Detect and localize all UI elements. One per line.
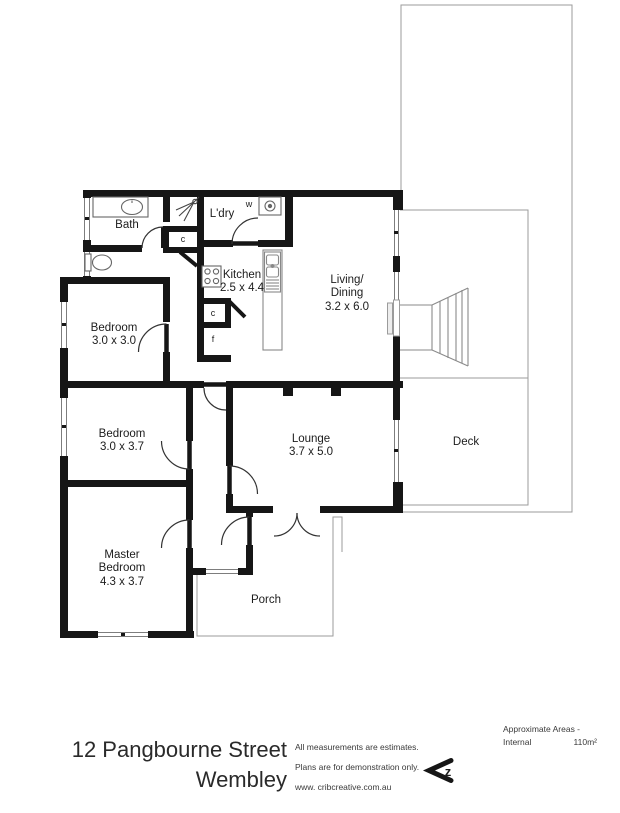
wall-segment <box>186 469 193 487</box>
wall-segment <box>60 381 204 388</box>
logo-letter: z <box>445 764 452 779</box>
wall-segment <box>60 277 170 284</box>
plan-title-line1: 12 Pangbourne Street <box>72 737 287 762</box>
room-dims-lounge: 3.7 x 5.0 <box>289 446 333 458</box>
wall-segment <box>226 381 403 388</box>
wall-segment <box>226 383 233 466</box>
floorplan-page: Bath L'dry w c c f Kitchen 2.5 x 4.4 Liv… <box>0 0 620 813</box>
marker-washer: w <box>245 199 253 209</box>
door-hallway <box>204 385 226 411</box>
room-label-kitchen: Kitchen <box>223 269 261 281</box>
door-lounge <box>230 466 258 494</box>
room-label-master-line2: Bedroom <box>99 562 146 574</box>
areas-name: Internal <box>503 737 531 747</box>
wall-segment <box>197 355 231 362</box>
wall-segment <box>186 548 193 638</box>
wall-segment <box>283 388 293 396</box>
door-closet-kitchen <box>229 301 245 317</box>
stair-edge-line <box>432 350 468 366</box>
cribcreative-logo: z <box>429 761 452 781</box>
door-bath <box>142 227 163 248</box>
areas-heading: Approximate Areas - <box>503 724 580 734</box>
door-bedroom2 <box>162 441 190 469</box>
room-label-bedroom2: Bedroom <box>99 428 146 440</box>
wall-segment <box>163 352 170 381</box>
sliding-door <box>388 300 400 336</box>
door-master <box>162 520 190 548</box>
door-closet-hall <box>180 252 197 266</box>
window <box>62 302 67 348</box>
deck-boundary-line <box>400 210 528 505</box>
room-dims-bedroom2: 3.0 x 3.7 <box>100 441 144 453</box>
wall-segment <box>258 240 285 247</box>
door-french <box>274 513 320 536</box>
floorplan-canvas: Bath L'dry w c c f Kitchen 2.5 x 4.4 Liv… <box>0 0 620 813</box>
deck-outline <box>400 210 528 505</box>
wall-segment <box>393 190 403 210</box>
window <box>62 398 67 456</box>
room-label-laundry: L'dry <box>210 208 235 220</box>
kitchen-bench-icon <box>263 250 282 350</box>
land-outline <box>400 5 572 512</box>
window <box>206 570 238 574</box>
washing-machine-icon <box>259 197 281 215</box>
wall-segment <box>163 284 170 322</box>
porch-outline <box>197 517 342 636</box>
door-laundry <box>232 218 258 244</box>
room-label-living-line2: Dining <box>331 287 364 299</box>
wall-segment <box>186 487 193 520</box>
disclaimer-demonstration: Plans are for demonstration only. <box>295 762 419 772</box>
shower-icon <box>176 197 199 221</box>
window <box>395 272 399 300</box>
wall-segment <box>226 506 273 513</box>
window <box>394 210 399 256</box>
room-label-master-line1: Master <box>104 549 139 561</box>
disclaimer-measurements: All measurements are estimates. <box>295 742 419 752</box>
room-label-bath: Bath <box>115 219 139 231</box>
wall-segment <box>163 196 170 222</box>
stove-icon <box>202 266 221 287</box>
window <box>98 633 148 637</box>
wall-segment <box>60 487 68 638</box>
door-bedroom1 <box>139 324 167 352</box>
wall-segment <box>393 256 400 272</box>
room-dims-living: 3.2 x 6.0 <box>325 301 369 313</box>
wall-segment <box>246 545 253 575</box>
room-label-living-line1: Living/ <box>330 274 364 286</box>
areas-value: 110m² <box>574 737 598 747</box>
window <box>85 198 90 240</box>
porch-boundary-line <box>197 517 342 636</box>
wall-segment <box>83 190 403 197</box>
toilet-icon <box>85 254 112 271</box>
room-dims-kitchen: 2.5 x 4.4 <box>220 282 265 294</box>
wall-segment <box>60 388 68 398</box>
wall-segment <box>393 482 403 513</box>
room-label-lounge: Lounge <box>292 433 330 445</box>
wall-segment <box>226 494 233 513</box>
plan-title-line2: Wembley <box>196 767 287 792</box>
land-boundary-line <box>400 5 572 512</box>
wall-segment <box>83 276 91 284</box>
stairs <box>400 288 468 366</box>
window <box>394 420 399 482</box>
marker-kitchen-closet: c <box>211 308 216 318</box>
wall-segment <box>60 456 68 487</box>
website-url: www. cribcreative.com.au <box>294 782 392 792</box>
wall-segment <box>60 277 68 302</box>
stair-edge-line <box>432 288 468 305</box>
wall-segment <box>83 190 91 198</box>
wall-segment <box>331 388 341 396</box>
wall-segment <box>393 336 400 420</box>
footer: 12 Pangbourne Street Wembley All measure… <box>72 724 597 792</box>
marker-fridge: f <box>212 334 215 344</box>
door-entry <box>222 517 250 545</box>
marker-hall-closet: c <box>181 234 186 244</box>
room-dims-master: 4.3 x 3.7 <box>100 576 144 588</box>
wall-segment <box>320 506 403 513</box>
room-dims-bedroom1: 3.0 x 3.0 <box>92 335 136 347</box>
room-labels: Bath L'dry w c c f Kitchen 2.5 x 4.4 Liv… <box>91 199 480 606</box>
wall-segment <box>60 480 193 487</box>
vanity-icon <box>93 197 148 217</box>
wall-segment <box>91 245 142 252</box>
wall-segment <box>83 240 91 252</box>
wall-segment <box>285 196 293 247</box>
room-label-porch: Porch <box>251 594 281 606</box>
room-label-deck: Deck <box>453 436 479 448</box>
wall-segment <box>60 348 68 388</box>
wall-segment <box>186 388 193 441</box>
room-label-bedroom1: Bedroom <box>91 322 138 334</box>
